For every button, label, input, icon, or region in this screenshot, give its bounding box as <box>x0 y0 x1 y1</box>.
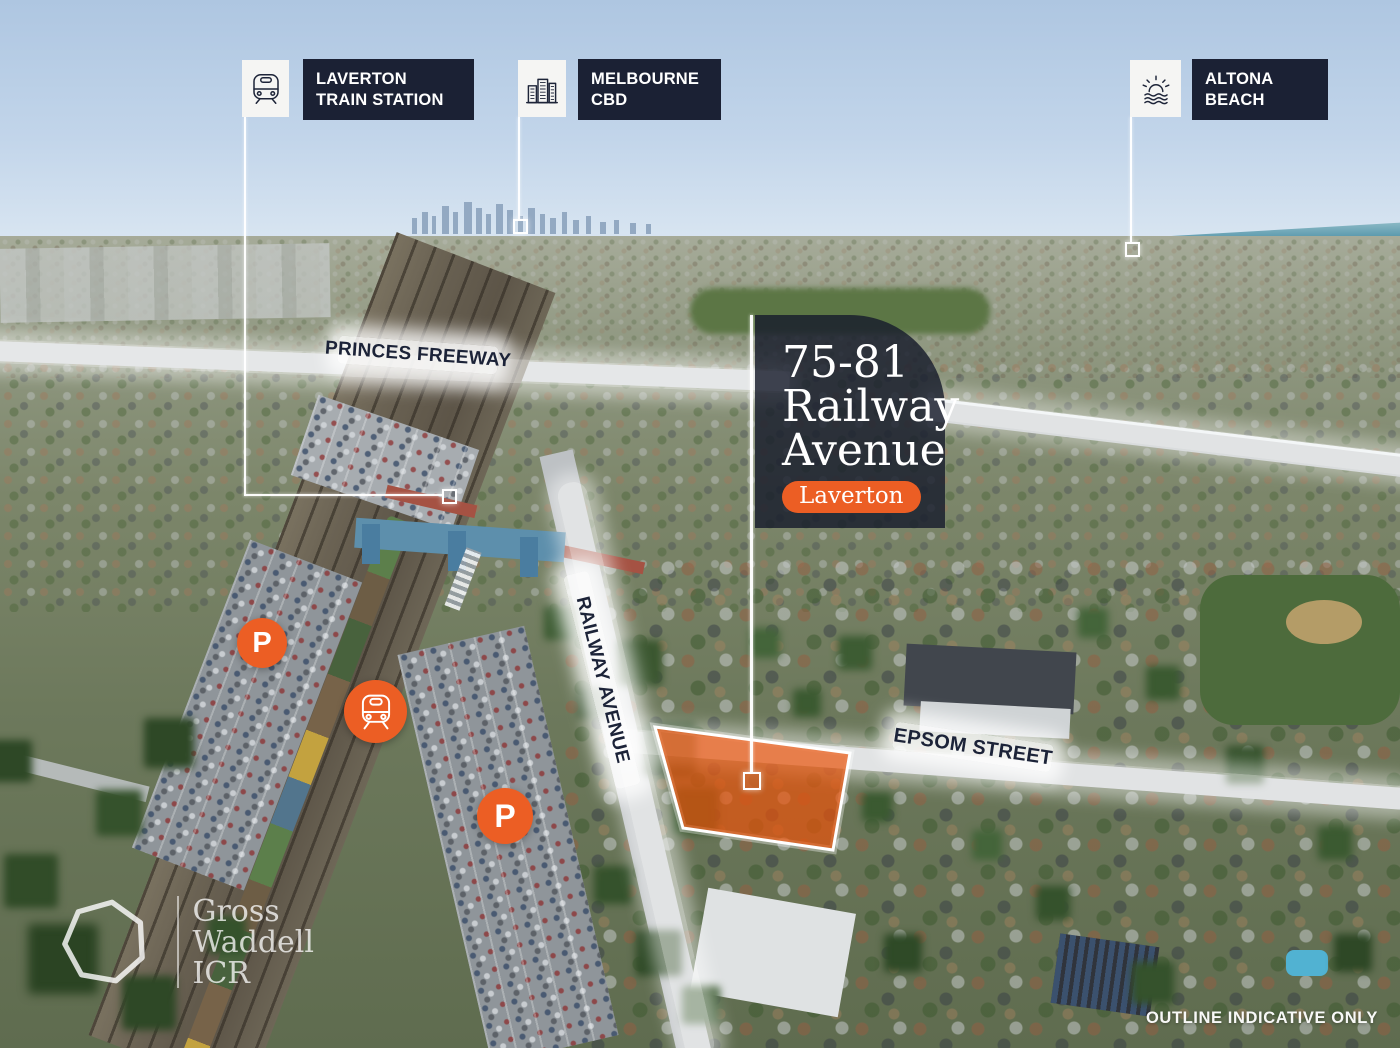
leader-line-property <box>750 315 753 772</box>
callout-label-laverton-train-station: LAVERTON TRAIN STATION <box>303 59 474 120</box>
suburb-badge: Laverton <box>782 481 921 513</box>
train-icon <box>251 72 281 106</box>
outline-disclaimer: OUTLINE INDICATIVE ONLY <box>1146 1009 1378 1028</box>
property-title-panel: 75-81 Railway Avenue Laverton <box>755 315 945 528</box>
callout-icon-laverton-train-station <box>242 60 289 117</box>
callout-text-line: ALTONA <box>1205 69 1328 90</box>
heptagon-logo-icon <box>57 893 153 991</box>
address-line-3: Avenue <box>782 425 946 476</box>
agency-logo: Gross Waddell ICR <box>57 893 314 991</box>
target-marker-laverton-station <box>442 489 457 504</box>
leader-line-melbourne-cbd <box>518 117 520 220</box>
callout-label-altona-beach: ALTONA BEACH <box>1192 59 1328 120</box>
property-address: 75-81 Railway Avenue <box>782 341 945 473</box>
logo-word: Gross <box>193 896 314 927</box>
callout-icon-melbourne-cbd <box>518 60 566 117</box>
train-icon <box>358 692 394 732</box>
aerial-property-marketing-image: PRINCES FREEWAY RAILWAY AVENUE EPSOM STR… <box>0 0 1400 1048</box>
target-marker-property <box>743 772 761 790</box>
target-marker-melbourne-cbd <box>513 219 528 234</box>
logo-wordmark: Gross Waddell ICR <box>193 896 314 989</box>
sun-waves-icon <box>1139 72 1173 106</box>
leader-line-altona-beach <box>1130 117 1132 242</box>
callout-icon-altona-beach <box>1130 60 1181 117</box>
callout-text-line: MELBOURNE <box>591 69 721 90</box>
parking-letter: P <box>494 798 515 835</box>
leader-line-laverton-station-horizontal <box>244 494 443 496</box>
callout-text-line: BEACH <box>1205 90 1328 111</box>
logo-word: ICR <box>193 958 314 989</box>
logo-divider <box>177 896 179 988</box>
callout-label-melbourne-cbd: MELBOURNE CBD <box>578 59 721 120</box>
target-marker-altona-beach <box>1125 242 1140 257</box>
callout-text-line: CBD <box>591 90 721 111</box>
callout-text-line: LAVERTON <box>316 69 474 90</box>
parking-marker-south: P <box>477 788 533 844</box>
logo-word: Waddell <box>193 927 314 958</box>
city-buildings-icon <box>526 73 558 105</box>
train-station-marker <box>344 680 407 743</box>
callout-text-line: TRAIN STATION <box>316 90 474 111</box>
leader-line-laverton-station-vertical <box>244 117 246 496</box>
parking-letter: P <box>252 627 271 660</box>
parking-marker-west: P <box>237 618 287 668</box>
property-boundary-outline <box>0 0 1400 1048</box>
